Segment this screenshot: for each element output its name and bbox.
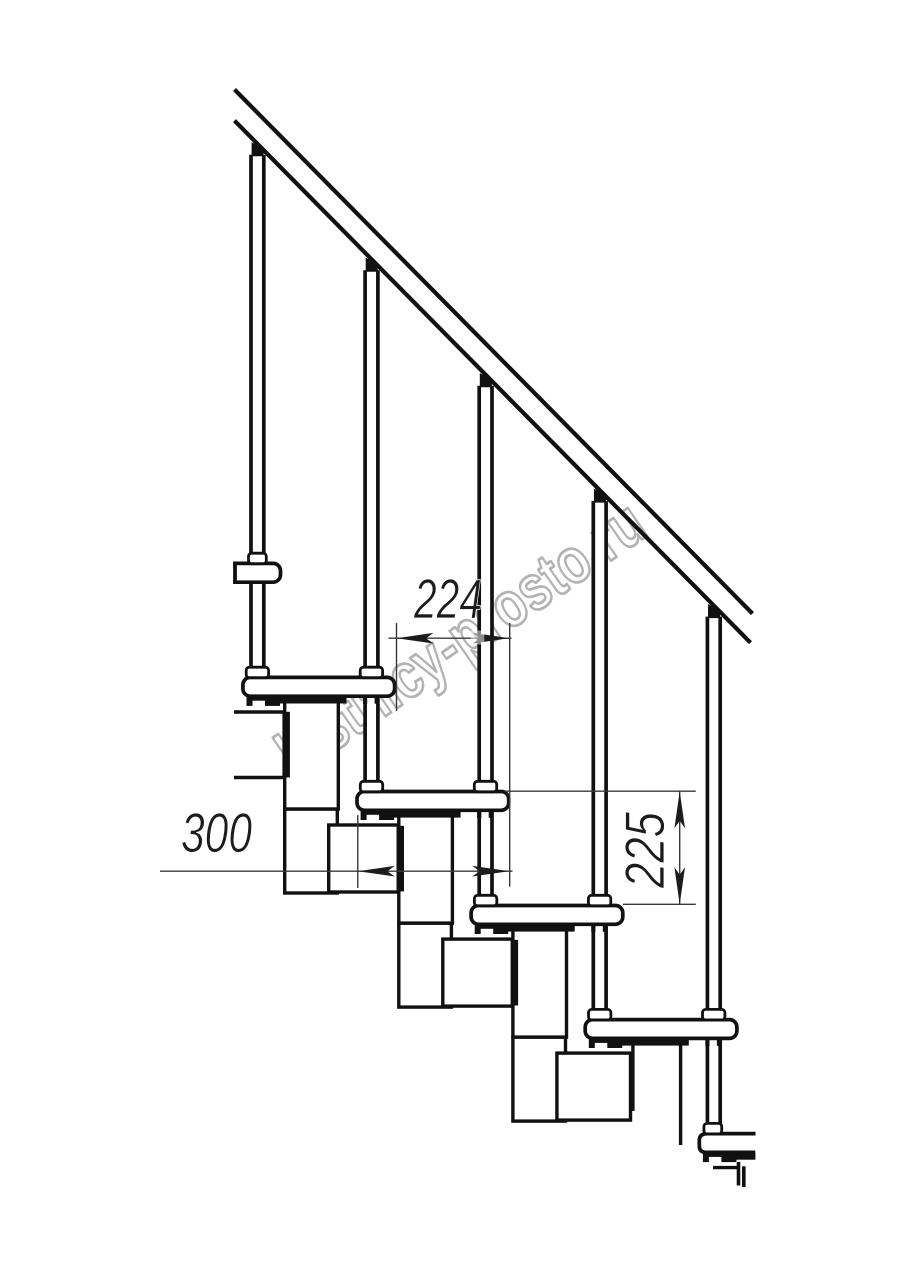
svg-text:300: 300 [181, 801, 252, 864]
svg-text:224: 224 [413, 567, 482, 630]
svg-text:225: 225 [613, 811, 676, 889]
